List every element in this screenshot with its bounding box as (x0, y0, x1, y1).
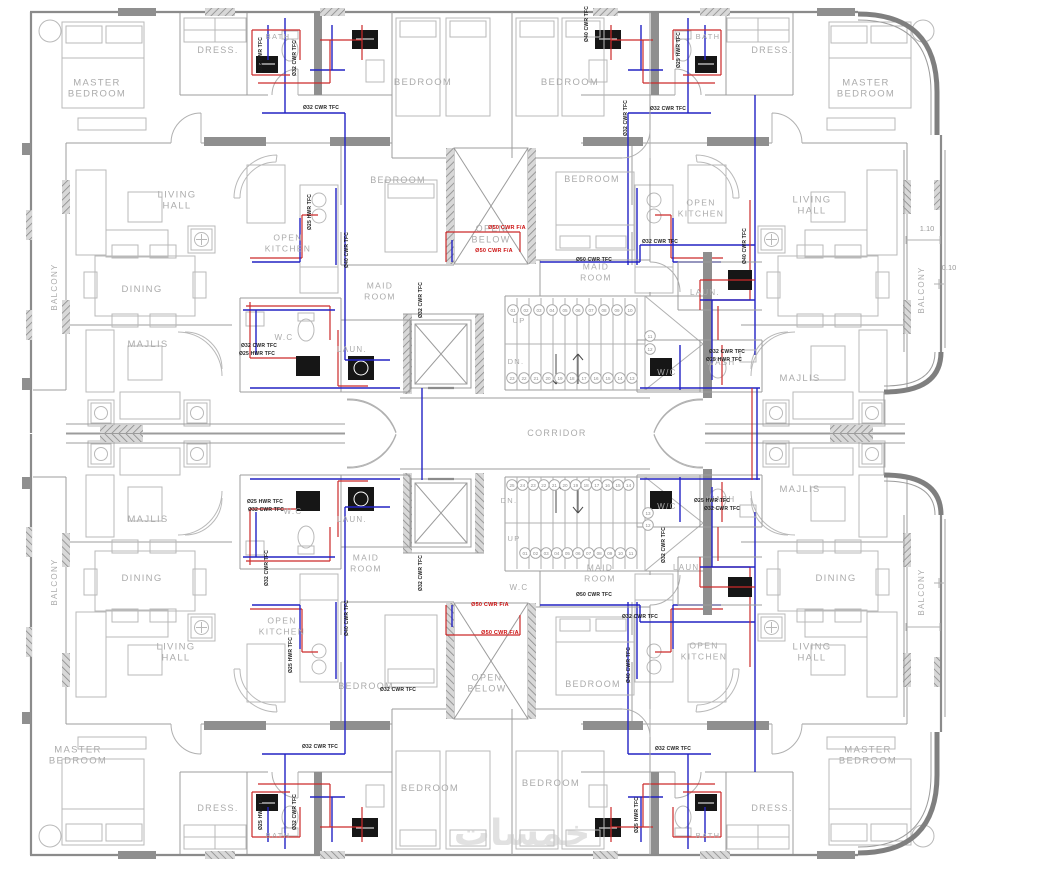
stair-number: 17 (594, 483, 600, 488)
room-label-balcony-right-up: BALCONY (917, 266, 926, 313)
stairs-up-label: UP (507, 534, 520, 543)
stair-number: 15 (605, 376, 611, 381)
room-label-maid-room-br: ROOM (584, 574, 616, 584)
pipe-label: Ø32 CWR TFC (622, 614, 658, 620)
pipe-label: Ø40 CWR TFC (344, 232, 350, 268)
pipe-label: Ø32 CWR TFC (623, 100, 629, 136)
stair-number: 19 (573, 483, 579, 488)
room-label-master-bedroom-bl: BEDROOM (49, 756, 107, 767)
stair-number: 02 (523, 308, 529, 313)
floor-plan-page: UPDN.01020304050607080910232221201918171… (0, 0, 1040, 869)
stair-number: 11 (629, 551, 634, 556)
room-label-wc-tl: W.C (274, 333, 293, 342)
room-label-wc-tr: W/C (657, 368, 676, 377)
stair-number: 10 (618, 551, 624, 556)
room-label-bath-tr: BATH (696, 32, 721, 41)
room-label-master-bedroom-br: BEDROOM (839, 756, 897, 767)
dimension-label: 1.10 (920, 224, 935, 233)
room-label-living-hall-bl: HALL (162, 653, 191, 664)
stair-number: 25 (509, 483, 515, 488)
stair-number: 05 (565, 551, 571, 556)
room-label-open-kitchen-bl: OPEN (267, 616, 296, 626)
room-label-living-hall-tr: HALL (798, 206, 827, 217)
room-label-majlis-tl: MAJLIS (127, 339, 168, 350)
stair-number: 20 (545, 376, 551, 381)
room-label-dress-tl: DRESS. (197, 45, 238, 55)
stair-number: 06 (575, 551, 581, 556)
stair-number: 12 (647, 347, 653, 352)
room-label-open-kitchen-bl: KITCHEN (259, 627, 305, 637)
stair-number: 17 (581, 376, 587, 381)
stair-number: 21 (552, 483, 558, 488)
pipe-label: Ø25 HWR TFC (247, 499, 283, 505)
room-label-laun-tr: LAUN. (690, 288, 720, 297)
pipe-label: Ø25 HWR TFC (258, 794, 264, 830)
room-label-maid-room-br: MAID (587, 563, 613, 573)
pipe-label: Ø25 HWR TFC (706, 357, 742, 363)
fire-line-label: Ø50 CWR F/A (488, 225, 526, 231)
stair-number: 05 (562, 308, 568, 313)
room-label-master-bedroom-tr: MASTER (842, 78, 889, 89)
stair-number: 08 (597, 551, 603, 556)
room-label-bath-tl: BATH (266, 32, 291, 41)
pipe-label: Ø50 CWR TFC (576, 257, 612, 263)
room-label-master-bedroom-br: MASTER (844, 745, 891, 756)
pipe-label: Ø32 CWR TFC (248, 507, 284, 513)
room-label-laun-bl: LAUN. (337, 515, 367, 524)
stair-number: 01 (510, 308, 516, 313)
room-label-bath-bl: BATH (266, 831, 291, 840)
stair-number: 06 (575, 308, 581, 313)
stair-number: 20 (562, 483, 568, 488)
stair-number: 14 (617, 376, 623, 381)
pipe-label: Ø32 CWR TFC (650, 106, 686, 112)
stair-number: 13 (645, 511, 651, 516)
fire-line-label: Ø50 CWR F/A (471, 602, 509, 608)
stair-number: 10 (627, 308, 633, 313)
room-label-bedroom-t2: BEDROOM (541, 77, 599, 88)
room-label-majlis-tr: MAJLIS (779, 373, 820, 384)
room-label-maid-room-bl: ROOM (350, 564, 382, 574)
room-label-maid-room-tr: MAID (583, 262, 609, 272)
pipe-label: Ø32 CWR TFC (418, 555, 424, 591)
room-label-dress-bl: DRESS. (197, 803, 238, 813)
pipe-label: Ø40 CWR TFC (584, 6, 590, 42)
room-label-living-hall-bl: LIVING (157, 642, 196, 653)
stair-number: 19 (557, 376, 563, 381)
room-label-master-bedroom-tl: MASTER (73, 78, 120, 89)
pipe-label: Ø50 CWR TFC (576, 592, 612, 598)
stairs-down-label: DN. (501, 496, 518, 505)
room-label-balcony-left-up: BALCONY (50, 263, 59, 310)
stair-number: 14 (626, 483, 632, 488)
pipe-label: Ø32 CWR TFC (303, 105, 339, 111)
room-label-open-below-b: OPEN (472, 673, 503, 683)
stair-number: 11 (648, 334, 653, 339)
stair-number: 24 (520, 483, 526, 488)
labels-layer: MASTERBEDROOMDRESS.BATHBEDROOMBEDROOMBAT… (49, 6, 956, 854)
room-label-wc-c: W.C (509, 583, 528, 592)
pipe-label: Ø25 HWR TFC (694, 498, 730, 504)
pipe-label: Ø32 CWR TFC (655, 746, 691, 752)
room-label-maid-room-tl: ROOM (364, 292, 396, 302)
pipe-label: Ø40 CWR TFC (742, 228, 748, 264)
room-label-corridor: CORRIDOR (527, 428, 586, 438)
room-label-open-below-b: BELOW (467, 684, 506, 694)
pipe-label: Ø32 CWR TFC (264, 550, 270, 586)
stair-number: 07 (586, 551, 592, 556)
room-label-master-bedroom-tr: BEDROOM (837, 89, 895, 100)
pipe-label: Ø32 CWR TFC (661, 527, 667, 563)
room-label-majlis-br: MAJLIS (779, 484, 820, 495)
stair-number: 01 (522, 551, 528, 556)
fire-line-label: Ø50 CWR F/A (475, 248, 513, 254)
room-label-maid-room-tr: ROOM (580, 273, 612, 283)
stair-number: 16 (593, 376, 599, 381)
room-label-maid-room-bl: MAID (353, 553, 379, 563)
room-label-wc-br: W/C (657, 502, 676, 511)
stair-number: 23 (531, 483, 537, 488)
stair-number: 21 (533, 376, 539, 381)
pipe-label: Ø25 HWR TFC (634, 797, 640, 833)
stair-number: 08 (601, 308, 607, 313)
room-label-majlis-bl: MAJLIS (127, 514, 168, 525)
room-label-dining-tl: DINING (121, 284, 162, 295)
watermark-text: خمسات (454, 813, 590, 854)
room-label-bedroom-ml: BEDROOM (370, 175, 426, 185)
stair-number: 02 (533, 551, 539, 556)
stair-number: 12 (645, 523, 651, 528)
stair-number: 18 (584, 483, 590, 488)
room-label-open-kitchen-tr: KITCHEN (678, 209, 724, 219)
pipe-label: Ø32 CWR TFC (709, 349, 745, 355)
room-label-laun-br: LAUN. (673, 563, 703, 572)
stair-number: 13 (629, 376, 635, 381)
pipe-label: Ø25 HWR TFC (307, 194, 313, 230)
pipe-label: Ø32 CWR TFC (380, 687, 416, 693)
pipe-label: Ø32 CWR TFC (704, 506, 740, 512)
room-label-maid-room-tl: MAID (367, 281, 393, 291)
stair-number: 07 (588, 308, 594, 313)
room-label-master-bedroom-bl: MASTER (54, 745, 101, 756)
room-label-living-hall-tl: HALL (163, 201, 192, 212)
room-label-living-hall-br: HALL (798, 653, 827, 664)
stair-number: 22 (521, 376, 527, 381)
pipe-label: Ø32 CWR TFC (241, 343, 277, 349)
pipe-label: Ø32 CWR TFC (418, 282, 424, 318)
room-label-wc-bl: W.C (283, 507, 302, 516)
room-label-master-bedroom-tl: BEDROOM (68, 89, 126, 100)
stair-number: 22 (541, 483, 547, 488)
stair-number: 03 (544, 551, 550, 556)
room-label-open-kitchen-br: KITCHEN (681, 652, 727, 662)
fire-line-label: Ø50 CWR F/A (481, 630, 519, 636)
stairs-up-label: UP (512, 316, 525, 325)
stair-number: 09 (607, 551, 613, 556)
room-label-laun-tl: LAUN. (337, 345, 367, 354)
stair-number: 03 (536, 308, 542, 313)
room-label-dress-tr: DRESS. (751, 45, 792, 55)
stairs-down-label: DN. (508, 357, 525, 366)
stair-number: 16 (605, 483, 611, 488)
room-label-open-kitchen-tr: OPEN (686, 198, 715, 208)
room-label-open-kitchen-br: OPEN (689, 641, 718, 651)
pipe-label: Ø40 CWR TFC (626, 647, 632, 683)
pipe-label: Ø32 CWR TFC (642, 239, 678, 245)
stair-number: 15 (615, 483, 621, 488)
room-label-dress-br: DRESS. (751, 803, 792, 813)
room-label-bedroom-bm: BEDROOM (565, 679, 621, 689)
pipe-label: Ø25 HWR TFC (288, 637, 294, 673)
stair-number: 18 (569, 376, 575, 381)
pipe-label: Ø32 CWR TFC (292, 794, 298, 830)
room-label-open-kitchen-tl: KITCHEN (265, 244, 311, 254)
pipe-label: Ø40 CWR TFC (344, 600, 350, 636)
stair-number: 09 (614, 308, 620, 313)
pipe-label: Ø32 CWR TFC (292, 40, 298, 76)
floor-plan-drawing: UPDN.01020304050607080910232221201918171… (0, 0, 1040, 869)
room-label-bath-br: BATH (696, 831, 721, 840)
room-label-bedroom-b2: BEDROOM (522, 778, 580, 789)
room-label-living-hall-br: LIVING (793, 642, 832, 653)
room-label-open-kitchen-tl: OPEN (273, 233, 302, 243)
stair-number: 23 (509, 376, 515, 381)
stair-number: 04 (549, 308, 555, 313)
room-label-dining-br: DINING (815, 573, 856, 584)
room-label-balcony-left-low: BALCONY (50, 558, 59, 605)
room-label-open-below-t: BELOW (471, 235, 510, 245)
pipe-label: Ø25 HWR TFC (258, 37, 264, 73)
room-label-balcony-right-low: BALCONY (917, 568, 926, 615)
room-label-living-hall-tl: LIVING (158, 190, 197, 201)
room-label-dining-bl: DINING (121, 573, 162, 584)
room-label-bedroom-b1: BEDROOM (401, 783, 459, 794)
room-label-living-hall-tr: LIVING (793, 195, 832, 206)
pipe-label: Ø32 CWR TFC (302, 744, 338, 750)
pipe-label: Ø25 HWR TFC (676, 32, 682, 68)
stair-number: 04 (554, 551, 560, 556)
room-label-bedroom-mr: BEDROOM (564, 174, 620, 184)
walls-and-furniture-layer (22, 8, 945, 859)
pipe-label: Ø25 HWR TFC (239, 351, 275, 357)
dimension-label: 0.10 (942, 263, 957, 272)
room-label-bedroom-t1: BEDROOM (394, 77, 452, 88)
